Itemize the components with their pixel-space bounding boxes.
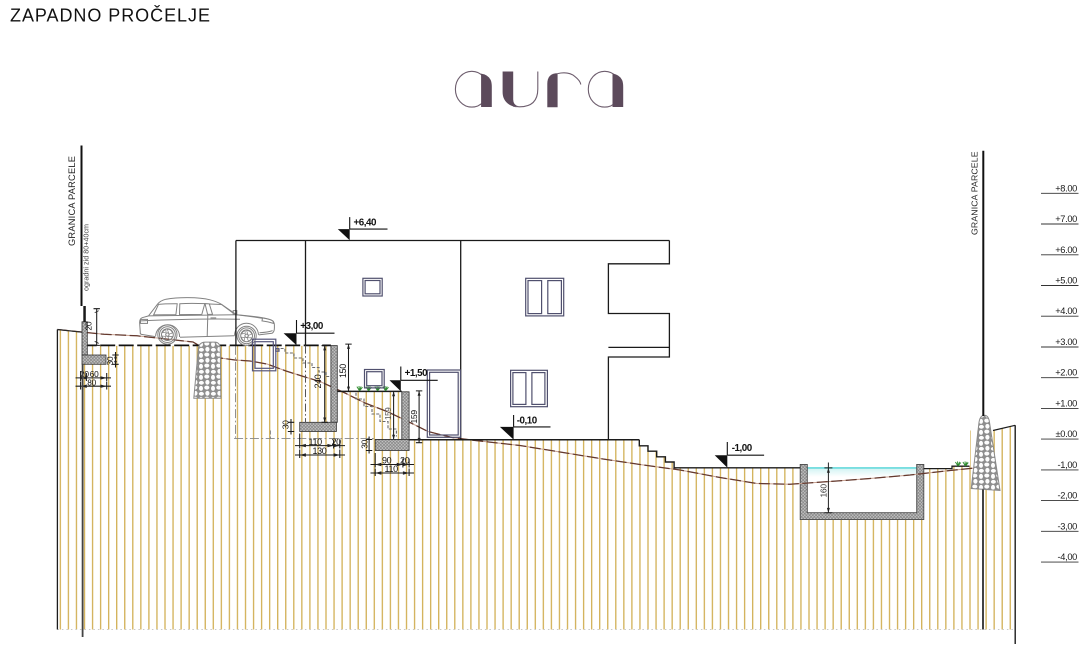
svg-text:159: 159 bbox=[409, 410, 419, 424]
svg-text:+6.00: +6.00 bbox=[1055, 245, 1077, 255]
svg-text:-1,00: -1,00 bbox=[732, 443, 753, 454]
svg-text:30: 30 bbox=[280, 420, 290, 429]
svg-text:80: 80 bbox=[87, 377, 96, 387]
svg-text:+7.00: +7.00 bbox=[1055, 214, 1077, 224]
svg-text:+2.00: +2.00 bbox=[1055, 368, 1077, 378]
svg-text:130: 130 bbox=[313, 446, 327, 456]
svg-text:GRANICA PARCELE: GRANICA PARCELE bbox=[67, 156, 77, 246]
svg-text:-0,10: -0,10 bbox=[517, 416, 538, 427]
svg-text:20: 20 bbox=[332, 437, 342, 447]
svg-text:-4,00: -4,00 bbox=[1058, 552, 1078, 562]
svg-text:+1.00: +1.00 bbox=[1055, 398, 1077, 408]
svg-text:+4.00: +4.00 bbox=[1055, 306, 1077, 316]
svg-text:-1,00: -1,00 bbox=[1058, 460, 1078, 470]
svg-text:20: 20 bbox=[84, 321, 94, 330]
svg-text:+3.00: +3.00 bbox=[1055, 337, 1077, 347]
svg-text:-3,00: -3,00 bbox=[1058, 521, 1078, 531]
svg-text:159: 159 bbox=[384, 407, 393, 420]
svg-text:+1,50: +1,50 bbox=[405, 368, 429, 379]
svg-text:20: 20 bbox=[400, 456, 410, 466]
svg-text:+6,40: +6,40 bbox=[354, 218, 378, 229]
svg-text:±0.00: ±0.00 bbox=[1056, 429, 1078, 439]
svg-text:150: 150 bbox=[338, 364, 348, 378]
svg-text:30: 30 bbox=[105, 356, 115, 365]
svg-text:+5.00: +5.00 bbox=[1055, 276, 1077, 286]
svg-text:+8.00: +8.00 bbox=[1055, 183, 1077, 193]
svg-text:160: 160 bbox=[819, 484, 829, 498]
svg-text:ogradni zid 80+40cm: ogradni zid 80+40cm bbox=[83, 224, 91, 291]
svg-text:+3,00: +3,00 bbox=[300, 321, 324, 332]
svg-text:ZAPADNO PROČELJE: ZAPADNO PROČELJE bbox=[10, 5, 211, 26]
svg-text:GRANICA PARCELE: GRANICA PARCELE bbox=[970, 151, 980, 235]
svg-text:-2,00: -2,00 bbox=[1058, 491, 1078, 501]
svg-text:240: 240 bbox=[313, 374, 323, 388]
svg-text:30: 30 bbox=[360, 439, 370, 448]
svg-text:110: 110 bbox=[385, 464, 399, 474]
